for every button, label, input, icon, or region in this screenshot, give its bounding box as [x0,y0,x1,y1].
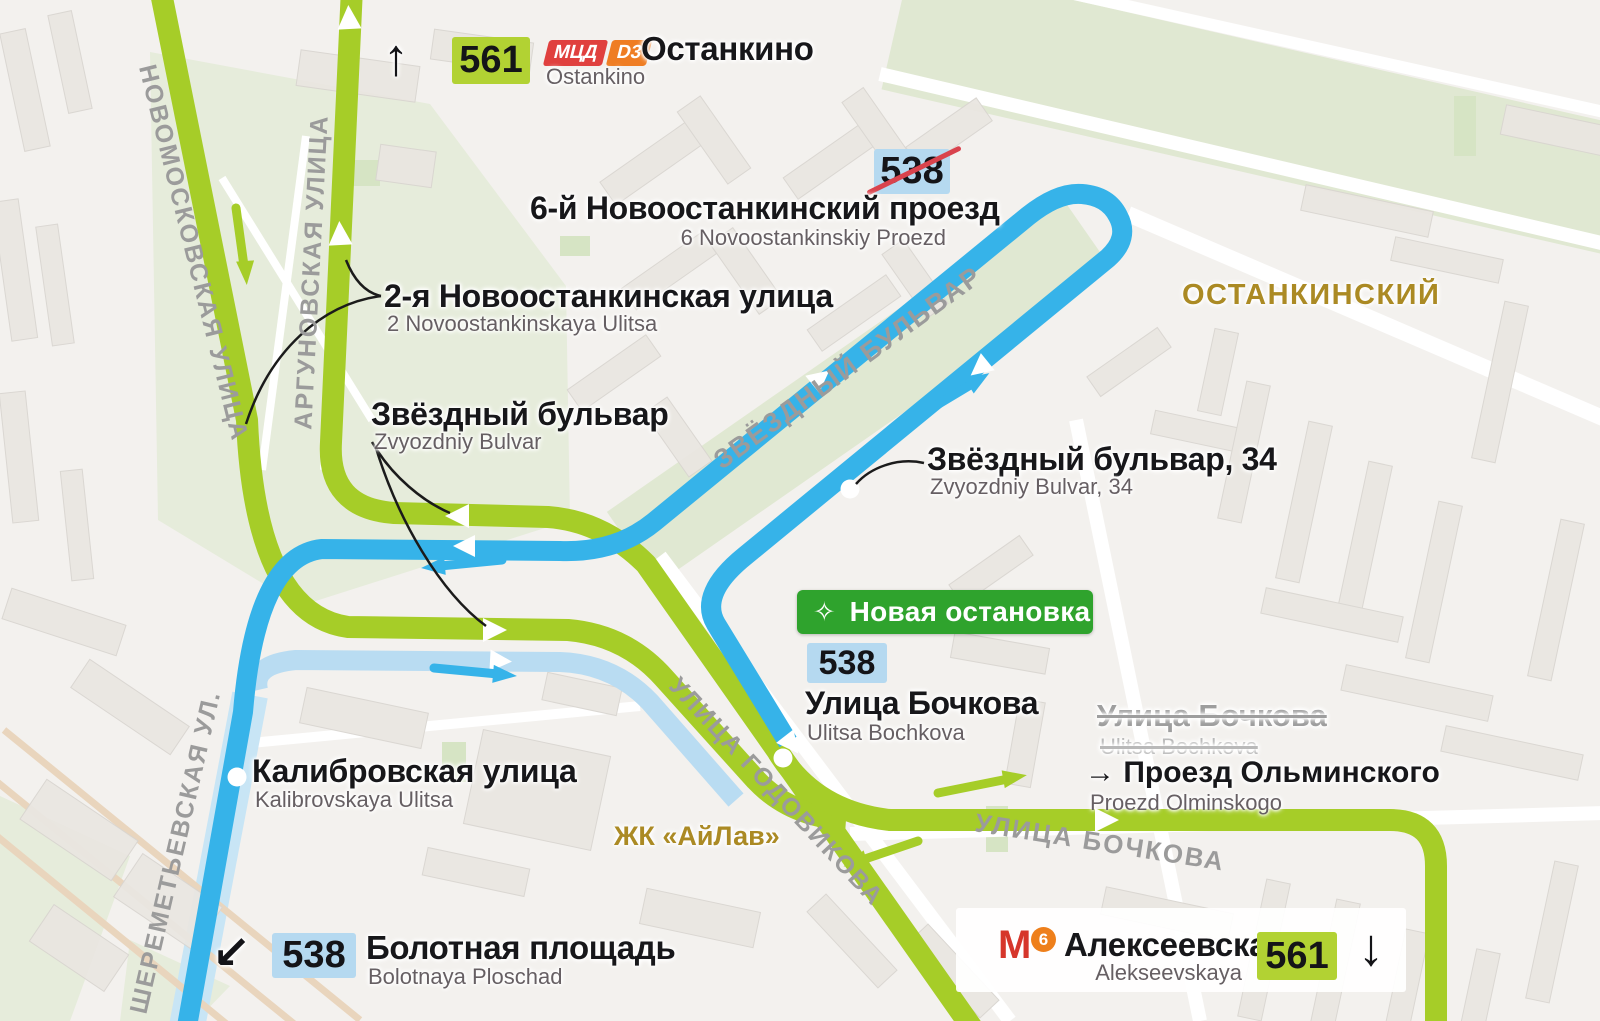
callout-novoostankinskiy-name: 6-й Новоостанкинский проезд [530,192,1000,224]
route-561-badge-southeast: 561 [1257,932,1337,980]
stop-dot-kalibrovskaya [228,768,247,787]
callout-zvyozdniy34-name: Звёздный бульвар, 34 [927,443,1277,475]
callout-novoostankinskaya-latin: 2 Novoostankinskaya Ulitsa [387,313,657,335]
route-538-badge-bochkova: 538 [807,643,887,683]
terminal-southwest-name: Болотная площадь [366,931,675,964]
arrow-up-icon: ↑ [383,28,409,88]
zhk-ailav-label: ЖК «АйЛав» [614,823,780,850]
renamed-old-latin: Ulitsa Bochkova [1100,736,1258,758]
new-stop-label: Новая остановка [850,596,1091,628]
terminal-north-name: Останкино [641,32,814,65]
mcd-d3-badges: МЦД D3 [546,40,650,66]
callout-novoostankinskiy-latin: 6 Novoostankinskiy Proezd [530,227,946,249]
route-538-badge-southwest: 538 [272,933,356,978]
callout-novoostankinskaya-name: 2-я Новоостанкинская улица [384,280,833,312]
transit-change-map: ↑ 561 МЦД D3 Останкино Ostankino 538 6-й… [0,0,1600,1021]
terminal-north-latin: Ostankino [546,66,645,88]
arrow-down-icon: ↓ [1358,918,1384,978]
terminal-southwest-latin: Bolotnaya Ploschad [368,966,562,988]
callout-bochkova-latin: Ulitsa Bochkova [807,722,965,744]
route-561-badge-north: 561 [452,37,530,84]
new-stop-badge: ✧ Новая остановка [797,590,1093,634]
renamed-new-name: → Проезд Ольминского [1085,758,1440,788]
sparkle-icon: ✧ [813,597,836,628]
arrow-down-left-icon: ↙ [212,925,251,979]
callout-zvyozdniy-name: Звёздный бульвар [371,398,668,430]
callout-kalibrovskaya-name: Калибровская улица [252,755,576,787]
renamed-new-latin: Proezd Olminskogo [1090,792,1282,814]
callout-bochkova-name: Улица Бочкова [805,687,1038,719]
district-label: ОСТАНКИНСКИЙ [1182,281,1440,310]
map-canvas [0,0,1600,1021]
renamed-old-name: Улица Бочкова [1097,700,1327,731]
callout-zvyozdniy34-latin: Zvyozdniy Bulvar, 34 [930,476,1133,498]
callout-kalibrovskaya-latin: Kalibrovskaya Ulitsa [255,789,453,811]
terminal-southeast-latin: Alekseevskaya [1064,962,1242,984]
mcd-badge: МЦД [543,40,609,66]
terminal-southeast-name: Алексеевская [1064,928,1286,961]
callout-zvyozdniy-latin: Zvyozdniy Bulvar [374,431,542,453]
stop-dot-bochkova [774,749,793,768]
metro-line-6-badge: 6 [1031,927,1056,952]
metro-m-logo: М [998,925,1031,965]
right-arrow-icon: → [1085,756,1115,789]
